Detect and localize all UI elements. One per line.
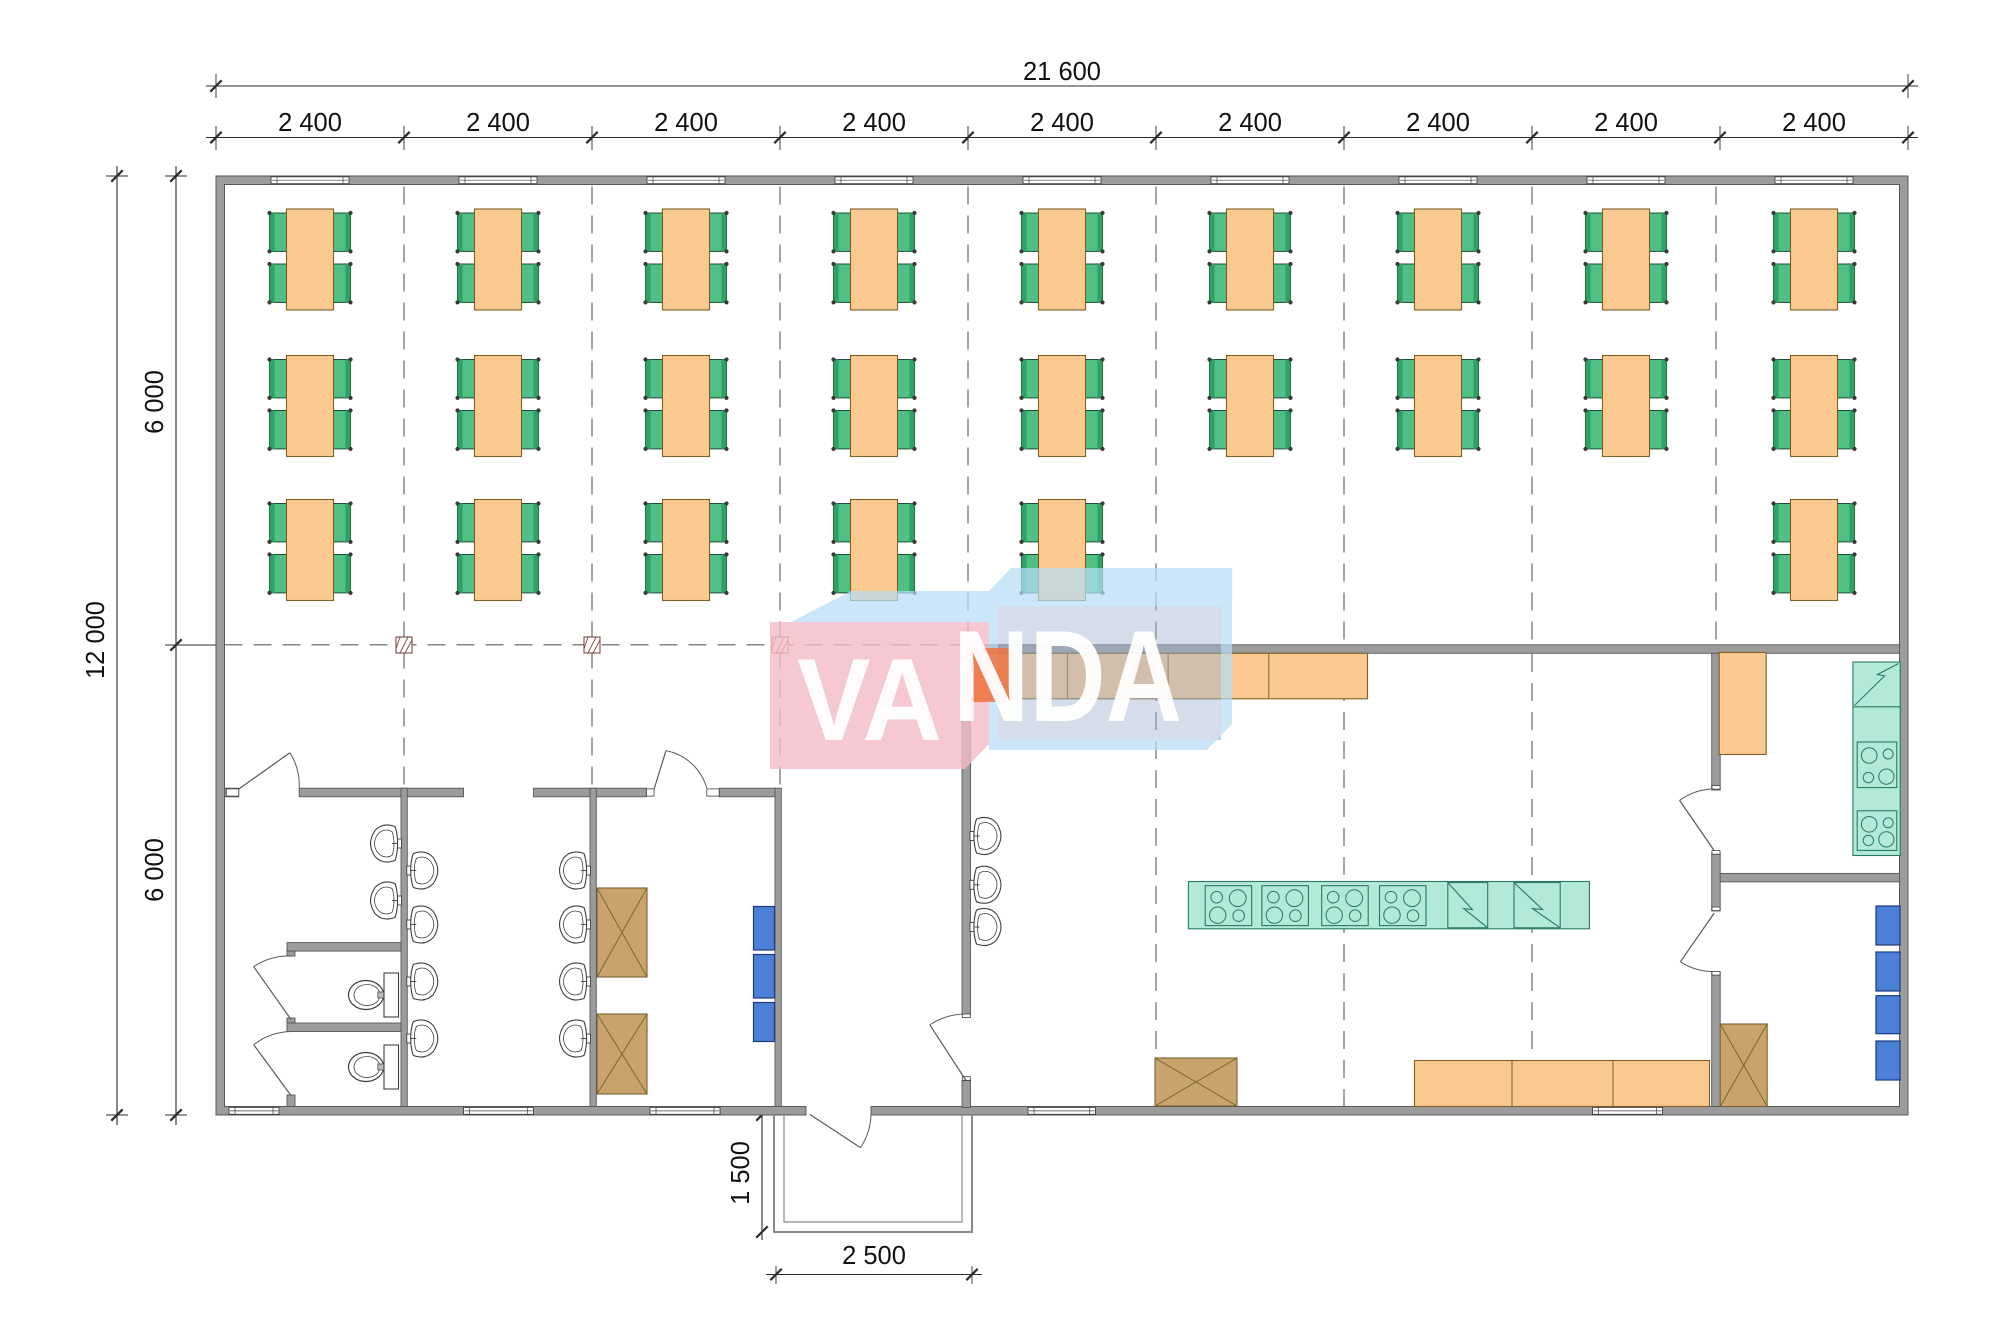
svg-text:2 400: 2 400: [1406, 109, 1470, 137]
svg-text:VA: VA: [797, 634, 942, 765]
svg-text:2 400: 2 400: [1782, 109, 1846, 137]
svg-text:NDA: NDA: [953, 603, 1182, 749]
svg-text:21 600: 21 600: [1023, 58, 1101, 86]
svg-text:2 400: 2 400: [1218, 109, 1282, 137]
svg-text:12 000: 12 000: [82, 601, 110, 679]
svg-text:6 000: 6 000: [141, 370, 169, 434]
svg-text:2 400: 2 400: [1030, 109, 1094, 137]
svg-text:2 400: 2 400: [1594, 109, 1658, 137]
svg-text:6 000: 6 000: [141, 838, 169, 902]
svg-text:2 400: 2 400: [654, 109, 718, 137]
svg-text:2 400: 2 400: [842, 109, 906, 137]
svg-text:2 400: 2 400: [278, 109, 342, 137]
svg-text:2 400: 2 400: [466, 109, 530, 137]
svg-text:2 500: 2 500: [842, 1242, 906, 1270]
svg-text:1 500: 1 500: [727, 1141, 755, 1205]
